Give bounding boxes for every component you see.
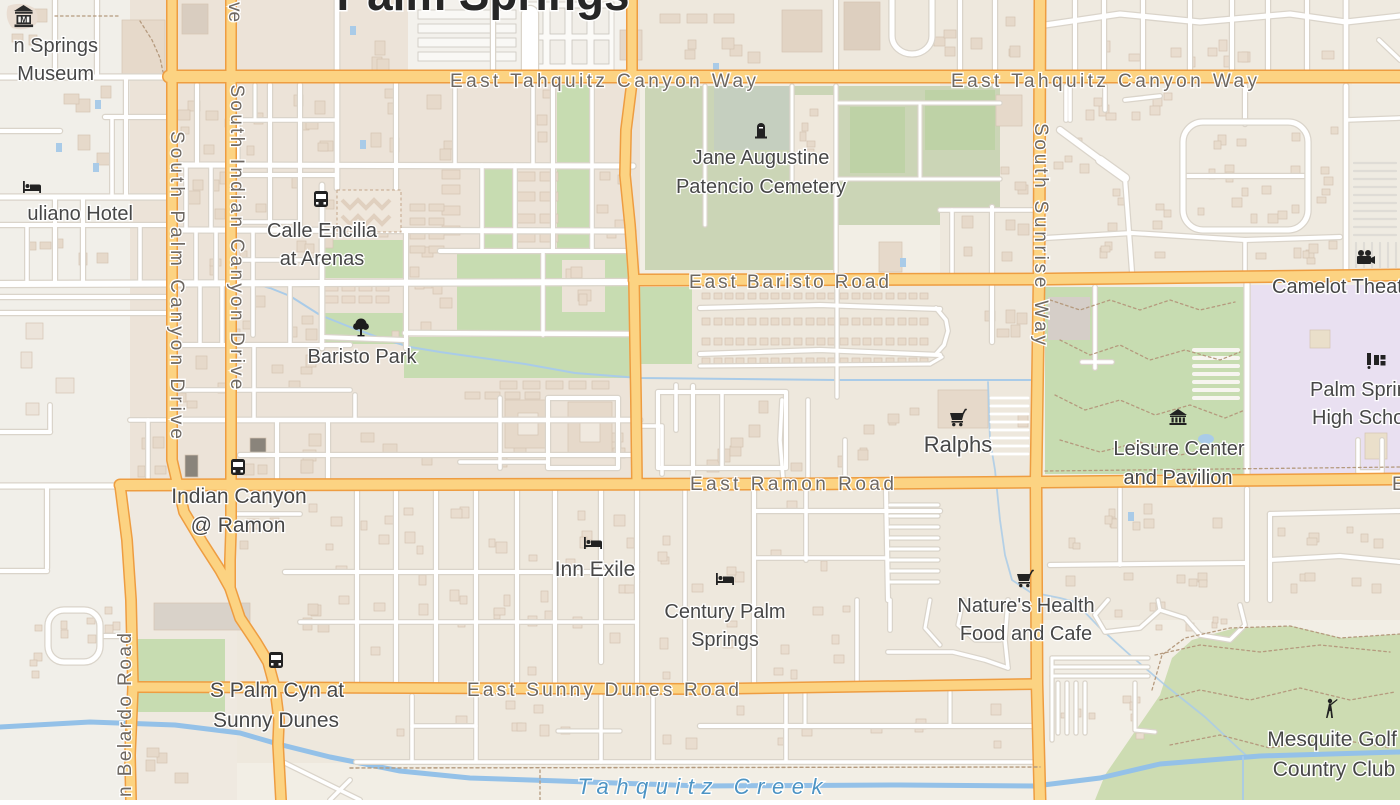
svg-text:South Sunrise Way: South Sunrise Way xyxy=(1030,123,1051,346)
svg-text:Inn Exile: Inn Exile xyxy=(555,558,636,581)
svg-text:at Arenas: at Arenas xyxy=(280,248,365,270)
svg-text:Nature's Health: Nature's Health xyxy=(957,595,1094,617)
svg-text:East Ramon Road: East Ramon Road xyxy=(690,474,894,495)
svg-text:Museum: Museum xyxy=(17,63,94,85)
svg-text:Country Club: Country Club xyxy=(1273,758,1396,781)
svg-text:uliano Hotel: uliano Hotel xyxy=(27,203,133,225)
svg-text:S Palm Cyn at: S Palm Cyn at xyxy=(210,679,344,702)
svg-text:n Springs: n Springs xyxy=(14,35,99,57)
svg-text:Sunny Dunes: Sunny Dunes xyxy=(213,709,339,732)
svg-text:East Baristo Road: East Baristo Road xyxy=(689,272,889,293)
svg-text:Food and Cafe: Food and Cafe xyxy=(960,623,1092,645)
svg-text:Calle Encilia: Calle Encilia xyxy=(267,220,378,242)
svg-text:Patencio Cemetery: Patencio Cemetery xyxy=(676,176,846,198)
svg-text:Mesquite Golf: Mesquite Golf xyxy=(1267,728,1397,751)
svg-text:Palm Springs: Palm Springs xyxy=(337,0,630,21)
svg-text:Ralphs: Ralphs xyxy=(924,432,992,457)
svg-text:M: M xyxy=(20,15,27,25)
svg-text:Baristo Park: Baristo Park xyxy=(308,346,418,368)
svg-text:Indian Canyon: Indian Canyon xyxy=(171,485,306,508)
svg-text:Springs: Springs xyxy=(691,629,759,651)
svg-text:ve: ve xyxy=(224,2,245,22)
svg-text:Leisure Center: Leisure Center xyxy=(1113,438,1245,460)
svg-text:E: E xyxy=(1392,474,1400,495)
svg-text:High School: High School xyxy=(1312,407,1400,429)
svg-text:@ Ramon: @ Ramon xyxy=(191,514,286,537)
svg-text:Palm Springs: Palm Springs xyxy=(1310,379,1400,401)
svg-text:and Pavilion: and Pavilion xyxy=(1124,467,1233,489)
svg-text:Century Palm: Century Palm xyxy=(664,601,785,623)
svg-text:Jane Augustine: Jane Augustine xyxy=(693,147,830,169)
svg-text:Camelot Theatres: Camelot Theatres xyxy=(1272,276,1400,298)
